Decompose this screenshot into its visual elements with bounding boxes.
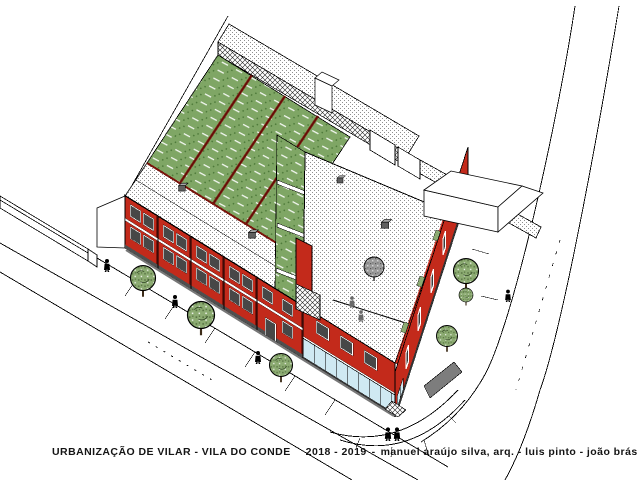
caption-separator: -: [372, 446, 376, 458]
low-annex-roof: [424, 362, 462, 398]
boundary-wall-end: [88, 249, 97, 267]
boundary-wall-face: [0, 200, 88, 261]
boundary-wall: [0, 196, 97, 267]
street-tree: [270, 354, 293, 383]
street-tree: [131, 266, 156, 297]
side-street-far-edge: [505, 6, 619, 480]
caption: URBANIZAÇÃO DE VILAR - VILA DO CONDE2018…: [52, 446, 640, 458]
gable-end-wall: [97, 196, 125, 248]
drawing-svg: [0, 0, 640, 480]
site-plan-drawing: URBANIZAÇÃO DE VILAR - VILA DO CONDE2018…: [0, 0, 640, 480]
caption-title: URBANIZAÇÃO DE VILAR - VILA DO CONDE: [52, 446, 291, 458]
pedestrian-figure: [385, 427, 391, 441]
street-tree: [454, 259, 479, 290]
caption-credits: manuel araújo silva, arq. - luis pinto -…: [381, 446, 640, 458]
street-tree: [188, 302, 215, 336]
pedestrian-figure: [104, 259, 110, 272]
pedestrian-figure: [505, 290, 511, 302]
street-tree: [437, 326, 458, 352]
caption-years: 2018 - 2019: [306, 446, 367, 458]
boundary-wall-top: [0, 196, 88, 253]
street-tree: [459, 288, 473, 306]
road-centerline-dashes: [148, 342, 212, 380]
central-gable-wall: [296, 238, 312, 292]
pedestrian-figure: [394, 427, 400, 441]
